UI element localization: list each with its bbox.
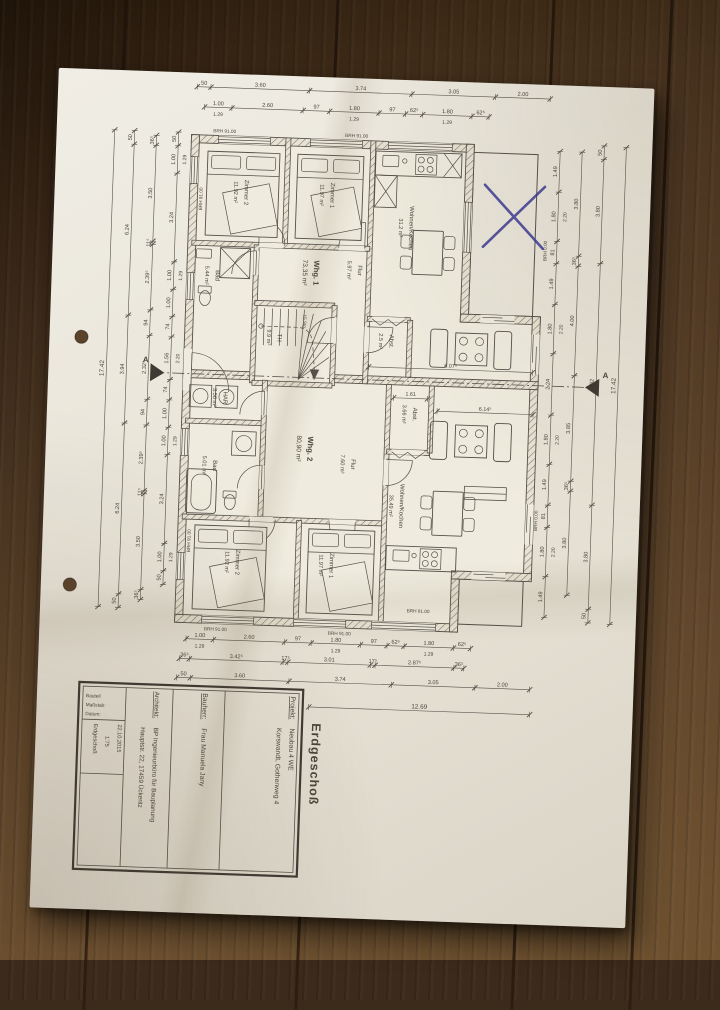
room-name-w2-abst: Abst. bbox=[411, 408, 417, 422]
brh-label: BRH 91.00 bbox=[186, 529, 192, 552]
room-area-w1-z1: 11.97 m² bbox=[318, 184, 325, 206]
dim-value: 50 bbox=[581, 613, 587, 619]
floor-wing bbox=[452, 322, 533, 573]
dim-value: 3.94 bbox=[120, 363, 126, 374]
photo-of-floor-plan: { "scene":{"surface":"wooden-table","woo… bbox=[0, 0, 720, 960]
dim-value: 50 bbox=[112, 597, 118, 603]
dim-value: 1.80 bbox=[423, 641, 434, 647]
room-name-w1-z2: Zimmer 2 bbox=[242, 180, 249, 206]
punch-hole-top bbox=[75, 330, 88, 343]
dim-sub-value: 1.29 bbox=[178, 271, 184, 281]
room-area-w2-wohnen: 35.49 m² bbox=[387, 495, 394, 517]
door-opening bbox=[530, 335, 539, 375]
stair-count-note: 15 Stg. bbox=[302, 315, 308, 330]
dim-value: 50 bbox=[201, 81, 207, 87]
title-block: Bauteil Maßstab: Datum: Erdgeschoß 1:75 … bbox=[73, 682, 303, 877]
room-name-th: TH bbox=[275, 334, 281, 342]
room-area-w1-abst: 2.5 m² bbox=[377, 333, 384, 349]
dim-value: 81 bbox=[550, 249, 556, 255]
dim-value: 1.80 bbox=[551, 211, 557, 222]
dim-value: 97 bbox=[389, 107, 395, 113]
dim-sub-value: 2.20 bbox=[558, 324, 564, 334]
room-area-w2-z2: 11.92 m² bbox=[223, 551, 230, 573]
dim-value: 2.60 bbox=[244, 634, 255, 640]
dim-interior: 1.61 bbox=[405, 392, 416, 398]
dim-value: 3.24 bbox=[169, 212, 175, 223]
dim-value: 4.00 bbox=[570, 315, 576, 326]
dim-value: 1.00 bbox=[166, 297, 172, 308]
room-area-w1-z2: 11.92 m² bbox=[232, 181, 239, 203]
dim-value: 1.49 bbox=[549, 278, 555, 289]
dim-value: 74 bbox=[165, 323, 171, 329]
dim-value: 36⁵ bbox=[180, 651, 189, 658]
dim-value: 1.56 bbox=[164, 353, 170, 364]
room-name-w2-z2: Zimmer 2 bbox=[233, 550, 240, 576]
projekt-value: Neubau 4 WE bbox=[286, 728, 294, 771]
projekt-label: Projekt: bbox=[288, 696, 296, 719]
dim-value: 1.00 bbox=[194, 633, 205, 639]
dim-value: 1.00 bbox=[161, 435, 167, 446]
floor-plan-drawing: Zimmer 211.92 m²Zimmer 111.97 m²Flur5.97… bbox=[30, 68, 655, 928]
terrace-bottom bbox=[458, 579, 524, 626]
date-value: 22.10.2015 bbox=[115, 724, 122, 752]
dim-sub-value: 1.29 bbox=[194, 643, 204, 649]
brh-label: BRH 91.00 bbox=[345, 133, 368, 139]
dim-value: 2.24 bbox=[545, 379, 551, 390]
duvet bbox=[223, 184, 278, 234]
room-area-th: 9.9 m² bbox=[265, 329, 272, 345]
dim-value: 50 bbox=[128, 134, 134, 140]
dim-sub-value: 1.29 bbox=[172, 436, 178, 446]
dim-value: 3.80 bbox=[595, 206, 601, 217]
dim-value: 62⁵ bbox=[458, 641, 467, 648]
apartment-area-2: 80,90 m² bbox=[294, 435, 302, 462]
projekt-value-2: Korswandt, Gothenweg 4 bbox=[272, 728, 282, 805]
dim-value: 12.69 bbox=[411, 703, 428, 711]
bauherr-label: Bauherr: bbox=[200, 693, 208, 719]
bauherr-value: Frau Manuela Jany bbox=[198, 728, 207, 787]
dim-value: 50 bbox=[172, 136, 178, 142]
dim-value: 50 bbox=[157, 574, 163, 580]
dim-sub-value: 1.29 bbox=[182, 155, 188, 165]
dim-sub-value: 1.29 bbox=[168, 552, 174, 562]
dim-value: 74 bbox=[163, 386, 169, 392]
dim-value: 2.00 bbox=[517, 92, 528, 98]
dim-value: 2.39⁵ bbox=[138, 451, 145, 464]
dim-value: 3.60 bbox=[234, 673, 245, 679]
room-name-w2-flur: Flur bbox=[349, 459, 355, 470]
dim-value: 94 bbox=[143, 319, 149, 325]
dim-value: 36⁵ bbox=[571, 257, 578, 266]
architekt-value-2: Hauptstr. 22, 17459 Ückeritz bbox=[136, 727, 147, 808]
dim-value: 1.49 bbox=[553, 166, 559, 177]
dim-value: 2.60 bbox=[262, 103, 273, 109]
dim-value: 3.24 bbox=[159, 493, 165, 504]
brh-label: BRH 0.00 bbox=[542, 240, 548, 261]
door-opening bbox=[249, 516, 273, 522]
dim-value: 3.01 bbox=[324, 657, 335, 663]
dim-value: 36⁵ bbox=[149, 136, 156, 145]
dim-sub-value: 1.29 bbox=[213, 112, 223, 118]
dim-value: 3.74 bbox=[335, 677, 346, 683]
dim-value: 1.49 bbox=[542, 479, 548, 490]
dim-value: 1.00 bbox=[213, 101, 224, 107]
room-area-w2-z1: 11.97 m² bbox=[317, 554, 324, 576]
room-name-w2-bad: Bad bbox=[211, 460, 217, 471]
dim-sub-value: 2.20 bbox=[551, 547, 557, 557]
room-area-w1-flur: 5.97 m² bbox=[345, 261, 352, 280]
apartment-name-1: Whg. 1 bbox=[311, 260, 321, 286]
dim-value: 3.05 bbox=[448, 89, 459, 95]
dim-sub-value: 1.29 bbox=[349, 117, 359, 123]
dim-value: 3.80 bbox=[574, 199, 580, 210]
dim-value: 17.42 bbox=[99, 360, 107, 377]
line bbox=[197, 87, 550, 99]
dim-interior: 6.14⁵ bbox=[479, 407, 492, 413]
dim-value: 6.24 bbox=[125, 224, 131, 235]
bauteil-value: Erdgeschoß bbox=[91, 723, 98, 754]
dim-value: 3.50 bbox=[136, 536, 142, 547]
dim-value: 2.87⁵ bbox=[408, 659, 421, 666]
punch-hole-bottom bbox=[63, 578, 76, 591]
dim-value: 1.80 bbox=[330, 637, 341, 643]
dim-sub-value: 1.29 bbox=[424, 651, 434, 657]
dim-value: 1.49 bbox=[538, 591, 544, 602]
dim-value: 3.42⁵ bbox=[230, 653, 243, 660]
dim-value: 2.00 bbox=[497, 682, 508, 688]
dim-sub-value: 2.20 bbox=[554, 435, 560, 445]
dim-value: 97 bbox=[371, 639, 377, 645]
room-area-w2-bad: 5.01 m² bbox=[200, 456, 207, 475]
dim-value: 36⁵ bbox=[133, 590, 140, 599]
sheet-title: Erdgeschoß bbox=[306, 723, 323, 806]
dim-value: 1.00 bbox=[162, 408, 168, 419]
dim-value: 3.80 bbox=[583, 552, 589, 563]
dim-value: 3.05 bbox=[428, 680, 439, 686]
dim-sub-value: 2.20 bbox=[562, 212, 568, 222]
dim-value: 1.00 bbox=[171, 154, 177, 165]
brh-label: BRH 0.00 bbox=[533, 510, 539, 531]
exterior-wall bbox=[449, 579, 459, 632]
room-area-w2-abst: 3.66 m² bbox=[400, 405, 407, 424]
dim-value: 62⁵ bbox=[410, 107, 419, 114]
door-opening bbox=[383, 459, 389, 485]
door-opening bbox=[471, 572, 505, 581]
dim-value: 94 bbox=[140, 409, 146, 415]
door-opening bbox=[364, 327, 370, 353]
dim-value: 3.50 bbox=[148, 188, 154, 199]
dim-value: 36⁵ bbox=[455, 661, 464, 668]
brh-label: BRH 91.00 bbox=[407, 608, 430, 614]
dim-interior: 6.07⁵ bbox=[444, 363, 457, 369]
room-area-w2-flur: 7.60 m² bbox=[338, 454, 345, 473]
dim-value: 97 bbox=[313, 105, 319, 111]
terrace-top bbox=[468, 152, 538, 316]
apartment-area-1: 73,35 m² bbox=[300, 259, 308, 286]
brh-label: BRH 91.00 bbox=[328, 631, 351, 637]
dim-value: 1.00 bbox=[167, 270, 173, 281]
room-area-w1-wohnen: 31.2 m² bbox=[397, 218, 404, 237]
dim-sub-value: 2.20 bbox=[175, 353, 181, 363]
dim-value: 1.80 bbox=[543, 434, 549, 445]
dim-sub-value: 1.29 bbox=[331, 648, 341, 654]
massstab-label: Maßstab: bbox=[86, 702, 106, 709]
dim-value: 6.24 bbox=[115, 503, 121, 514]
room-area-w2-har: 3.56 m² bbox=[211, 388, 218, 407]
room-name-w1-flur: Flur bbox=[356, 265, 362, 276]
section-label-right: A bbox=[602, 371, 608, 380]
dim-value: 17.42 bbox=[610, 377, 618, 394]
dim-value: 1.80 bbox=[442, 109, 453, 115]
dim-value: 3.85 bbox=[566, 423, 572, 434]
dim-value: 81 bbox=[541, 513, 547, 519]
brh-label: BRH 91.00 bbox=[213, 128, 236, 134]
section-label-left: A bbox=[143, 355, 149, 364]
paper-sheet: Zimmer 211.92 m²Zimmer 111.97 m²Flur5.97… bbox=[30, 68, 655, 928]
apartment-name-2: Whg. 2 bbox=[305, 436, 315, 461]
room-name-w2-z1: Zimmer 1 bbox=[327, 553, 334, 579]
door-opening bbox=[259, 242, 283, 248]
dim-sub-value: 1.29 bbox=[442, 120, 452, 126]
dim-value: 36⁵ bbox=[563, 482, 570, 491]
dim-value: 50 bbox=[598, 149, 604, 155]
architekt-label: Architekt: bbox=[152, 692, 160, 719]
room-name-w1-bad: Bad bbox=[214, 270, 220, 281]
line bbox=[567, 152, 582, 595]
dim-value: 2.39⁵ bbox=[144, 270, 151, 283]
dim-value: 1.00 bbox=[157, 551, 163, 562]
dim-value: 1.80 bbox=[540, 546, 546, 557]
bauteil-label: Bauteil bbox=[86, 693, 101, 700]
dim-value: 1.80 bbox=[547, 323, 553, 334]
dim-value: 3.80 bbox=[562, 538, 568, 549]
dim-value: 50 bbox=[180, 671, 186, 677]
room-name-w1-abst: Abst. bbox=[387, 335, 393, 349]
brh-label: BRH 91.00 bbox=[204, 626, 227, 632]
door-opening bbox=[329, 519, 355, 525]
door-opening bbox=[480, 315, 514, 324]
dim-value: 97 bbox=[295, 636, 301, 642]
architekt-value: BP Ingenieurbüro für Bauplanung bbox=[149, 728, 159, 823]
door-opening bbox=[331, 318, 337, 344]
dim-value: 3.74 bbox=[355, 86, 366, 92]
dim-value: 3.60 bbox=[255, 83, 266, 89]
room-name-w1-z1: Zimmer 1 bbox=[328, 183, 335, 209]
dim-value: 62⁵ bbox=[476, 109, 485, 116]
room-name-w2-har: HAR bbox=[221, 391, 227, 405]
section-arrow-left bbox=[150, 363, 165, 381]
brh-label: BRH 91.00 bbox=[198, 187, 204, 210]
dim-value: 1.80 bbox=[349, 106, 360, 112]
datum-label: Datum: bbox=[85, 711, 101, 718]
room-area-w1-bad: 5.44 m² bbox=[203, 266, 210, 285]
scale-value: 1:75 bbox=[103, 736, 109, 747]
door-opening bbox=[339, 245, 365, 251]
dim-value: 62⁵ bbox=[391, 639, 400, 646]
